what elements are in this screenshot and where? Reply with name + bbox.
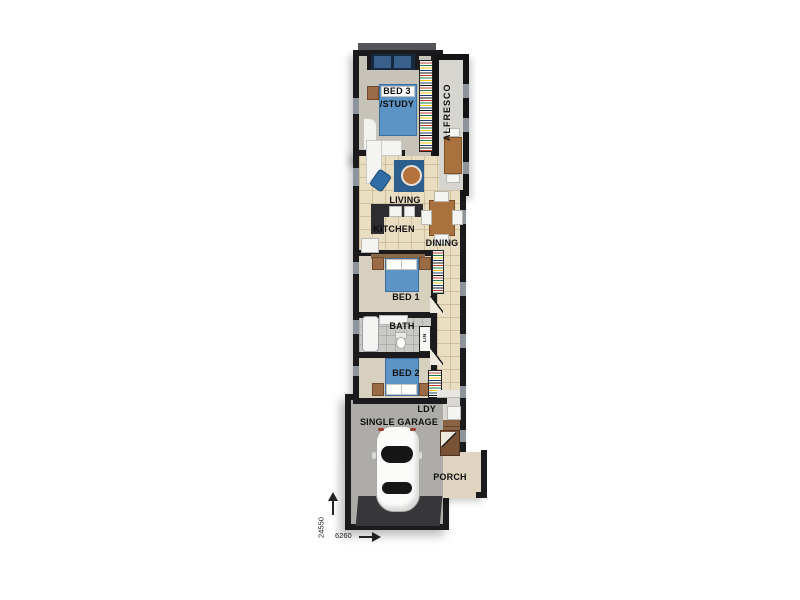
cooktop-icon [404, 206, 415, 217]
room-label-porch: PORCH [428, 471, 472, 483]
toilet-icon [396, 337, 406, 349]
fridge-icon [361, 238, 379, 253]
window [353, 262, 359, 274]
window [460, 334, 466, 348]
arrow-up-icon [328, 492, 338, 501]
bedside-table-icon [419, 257, 431, 270]
chair-icon [434, 191, 449, 202]
coffee-table-icon [401, 165, 422, 186]
car-taillight [410, 428, 416, 431]
bathtub-icon [362, 316, 379, 352]
chair-icon [452, 210, 463, 225]
pillow-icon [386, 259, 402, 270]
window [353, 320, 359, 334]
door-swing-icon [441, 432, 456, 447]
car-mirror [418, 452, 422, 459]
front-door-opening [460, 430, 466, 442]
bedside-table-icon [372, 383, 384, 396]
room-label-kitchen: KITCHEN [366, 223, 422, 235]
wall-porch-bottom [476, 492, 487, 498]
room-label-bed3-line1: BED 3 [383, 86, 411, 96]
door-swing-icon [430, 348, 443, 365]
pillow-icon [401, 259, 417, 270]
bedside-table-icon [372, 257, 384, 270]
room-label-laundry: LDY [408, 403, 436, 415]
room-label-living: LIVING [381, 194, 429, 206]
chair-icon [446, 174, 460, 183]
bed3-window-pane [394, 56, 411, 68]
bed3-window-pane [374, 56, 391, 68]
room-label-bed2: BED 2 [384, 367, 428, 379]
car-windshield [381, 446, 413, 463]
window [353, 168, 359, 186]
wardrobe-icon [432, 250, 444, 294]
arrow-up-icon [332, 500, 334, 515]
window [460, 282, 466, 296]
window [460, 386, 466, 398]
room-label-bed3-line2: /STUDY [380, 99, 414, 109]
door-swing-icon [430, 296, 443, 313]
room-label-alfresco: ALFRESCO [441, 66, 452, 158]
car-icon [376, 426, 420, 512]
alfresco-post-gap [463, 84, 469, 98]
dimension-depth: 24550 [317, 506, 326, 550]
room-label-garage: SINGLE GARAGE [354, 416, 444, 428]
pillow-icon [401, 384, 417, 395]
car-taillight [378, 428, 384, 431]
arrow-right-icon [372, 532, 381, 542]
washing-machine-icon [447, 406, 461, 420]
room-label-bed1: BED 1 [384, 291, 428, 303]
alfresco-post-gap [463, 162, 469, 174]
wall-porch-right [481, 450, 487, 496]
room-label-dining: DINING [418, 237, 466, 249]
alfresco-post-gap [463, 118, 469, 132]
pillow-icon [386, 384, 402, 395]
room-label-bed3: BED 3 /STUDY [372, 85, 422, 111]
sink-icon [389, 206, 402, 217]
room-label-bath: BATH [384, 320, 420, 332]
room-label-linen: LIN [421, 329, 428, 347]
arrow-right-icon [359, 536, 372, 538]
dimension-width: 6260 [335, 531, 357, 540]
laundry-bench [437, 390, 460, 398]
window [353, 98, 359, 114]
window [353, 366, 359, 376]
car-rear-window [382, 482, 412, 494]
car-mirror [372, 452, 376, 459]
floor-plan-canvas: BED 3 /STUDY ALFRESCO LIVING KITCHEN DIN… [0, 0, 800, 600]
chair-icon [421, 210, 432, 225]
